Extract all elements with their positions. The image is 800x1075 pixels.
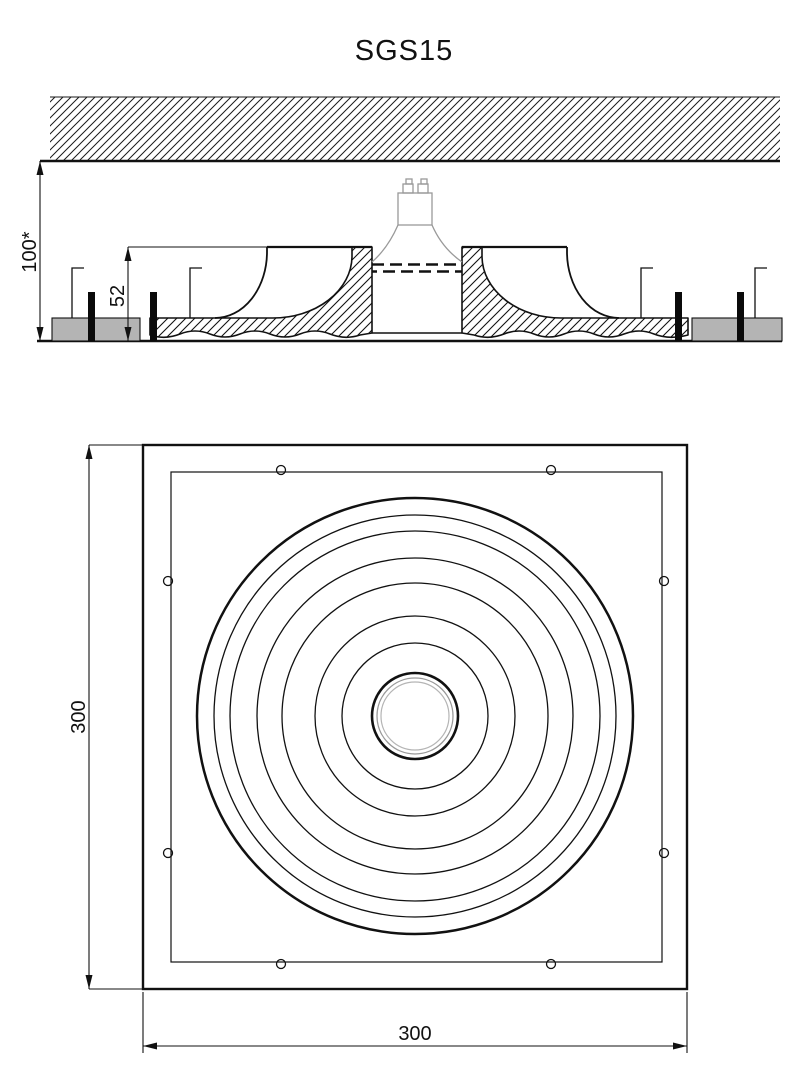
ceiling-slab-hatch [40, 97, 780, 161]
plate-outer-square [143, 445, 687, 989]
fixture-top-outline [215, 247, 619, 318]
dimension-plate-height: 300 [68, 445, 143, 989]
dim-label-plate-width: 300 [398, 1023, 431, 1045]
plate-inner-square [171, 472, 662, 962]
dim-label-recess-depth: 52 [107, 285, 129, 307]
mounting-clips [72, 268, 767, 318]
ripple-rings [197, 498, 633, 934]
lamp-aperture [372, 673, 458, 759]
technical-drawing-page: SGS15 [0, 0, 800, 1075]
dim-label-total-height: 100* [19, 231, 41, 272]
glass-dashed-lines [372, 265, 462, 272]
section-view: 100* 52 [19, 97, 782, 341]
dimension-plate-width: 300 [143, 992, 687, 1053]
fixture-section-left [150, 247, 372, 337]
plan-view: 300 300 [68, 445, 687, 1053]
drawing-canvas: SGS15 [0, 0, 800, 1075]
fixture-section-right [462, 247, 688, 337]
drawing-title: SGS15 [355, 35, 454, 67]
dimension-total-height: 100* [19, 161, 44, 341]
lamp-bulb [372, 179, 462, 262]
dim-label-plate-height: 300 [68, 700, 90, 733]
screw-holes [164, 466, 669, 969]
